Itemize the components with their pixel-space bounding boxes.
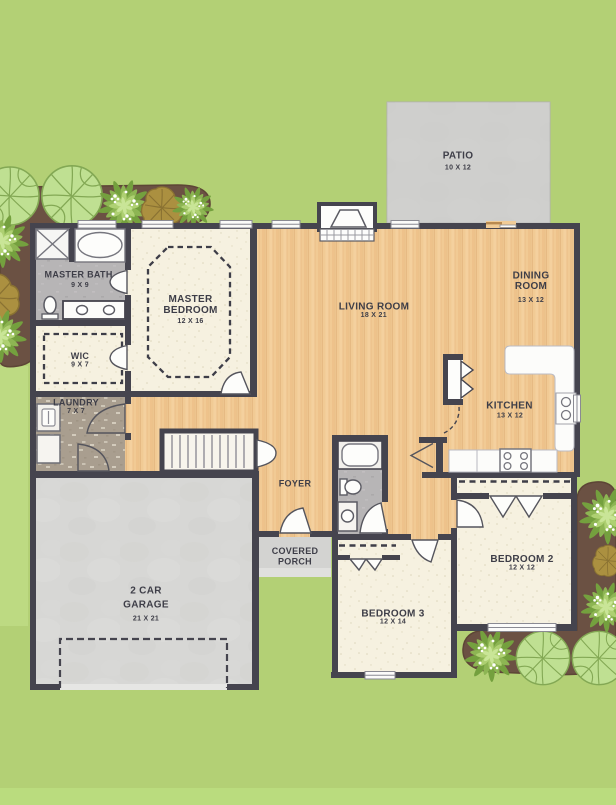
svg-text:FOYER: FOYER	[279, 479, 312, 489]
svg-text:21 X 21: 21 X 21	[133, 616, 159, 623]
svg-text:ROOM: ROOM	[515, 281, 547, 292]
svg-text:9 X 9: 9 X 9	[71, 282, 89, 289]
svg-text:LIVING ROOM: LIVING ROOM	[339, 301, 410, 312]
svg-text:7 X 7: 7 X 7	[67, 408, 85, 415]
svg-text:18 X 21: 18 X 21	[361, 312, 387, 319]
svg-text:DINING: DINING	[513, 270, 550, 281]
svg-text:12 X 16: 12 X 16	[177, 318, 203, 325]
svg-text:PATIO: PATIO	[443, 151, 474, 162]
svg-text:9 X 7: 9 X 7	[71, 362, 89, 369]
svg-text:PORCH: PORCH	[278, 556, 312, 566]
svg-text:MASTER BATH: MASTER BATH	[45, 270, 113, 280]
svg-text:13 X 12: 13 X 12	[497, 413, 523, 420]
svg-text:BEDROOM: BEDROOM	[163, 305, 217, 316]
svg-text:13 X 12: 13 X 12	[518, 297, 544, 304]
svg-text:BEDROOM 2: BEDROOM 2	[490, 554, 553, 565]
svg-text:WIC: WIC	[71, 351, 90, 361]
svg-text:12 X 12: 12 X 12	[509, 565, 535, 572]
svg-text:COVERED: COVERED	[272, 546, 319, 556]
svg-text:LAUNDRY: LAUNDRY	[53, 397, 99, 407]
svg-text:MASTER: MASTER	[168, 294, 212, 305]
svg-text:KITCHEN: KITCHEN	[486, 401, 533, 412]
svg-text:10 X 12: 10 X 12	[445, 165, 471, 172]
svg-text:GARAGE: GARAGE	[123, 600, 169, 611]
svg-text:2 CAR: 2 CAR	[130, 586, 162, 597]
svg-text:12 X 14: 12 X 14	[380, 619, 406, 626]
